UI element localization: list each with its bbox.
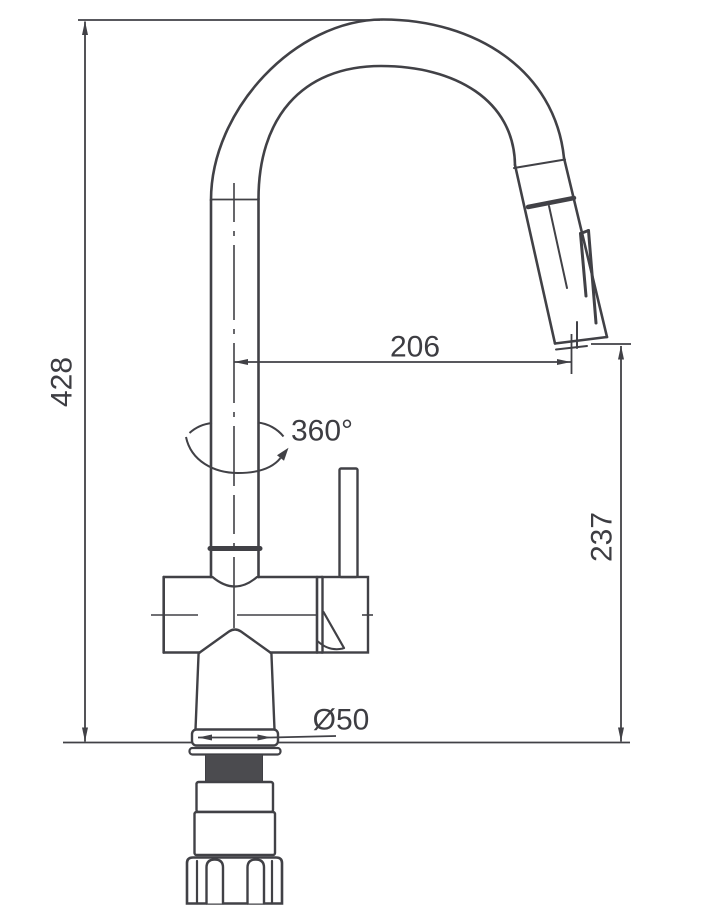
neck-right-edge (271, 653, 274, 730)
handle-rod (340, 469, 358, 578)
arrow-right (557, 359, 571, 365)
dimension-spout-reach: 206 (234, 331, 572, 375)
spout-inner-arc (259, 66, 516, 199)
swivel-rotation-arc (186, 423, 289, 474)
faucet-spout (210, 20, 564, 587)
base-neck-shoulder (199, 630, 271, 654)
arrow-down (618, 728, 624, 742)
arrow-down (82, 728, 88, 742)
dimension-label-diameter: Ø50 (313, 704, 370, 737)
head-right-edge (564, 158, 607, 337)
mounting-nut (187, 858, 282, 904)
mounting-block-lower (195, 812, 276, 855)
dimension-label-428: 428 (46, 357, 79, 407)
valve-body (164, 577, 323, 730)
dimension-label-237: 237 (586, 512, 619, 562)
mounting-base (187, 730, 282, 904)
base-flange-gasket (190, 748, 281, 755)
arrow-up (618, 346, 624, 360)
head-separator-band (528, 198, 574, 207)
dimension-label-206: 206 (390, 331, 440, 364)
handle-lever (318, 469, 368, 653)
dimension-outlet-height: 237 (586, 344, 632, 742)
handle-base (323, 577, 369, 653)
spray-trigger-clip (581, 231, 597, 324)
threaded-shank (206, 755, 263, 783)
technical-drawing-canvas: 428 206 237 Ø50 360° (0, 0, 706, 923)
head-left-edge (515, 165, 555, 344)
head-collar-line (514, 160, 565, 169)
mounting-block-upper (197, 782, 274, 812)
arrow-up (82, 21, 88, 35)
faucet-dimension-drawing: 428 206 237 Ø50 360° (0, 0, 706, 923)
spray-head (514, 158, 607, 350)
spout-outer-arc (211, 20, 564, 201)
arrow-left (234, 359, 248, 365)
head-bottom-face (555, 337, 607, 344)
swivel-angle-label: 360° (291, 415, 353, 448)
head-center-line (549, 206, 567, 288)
neck-left-edge (196, 653, 199, 730)
